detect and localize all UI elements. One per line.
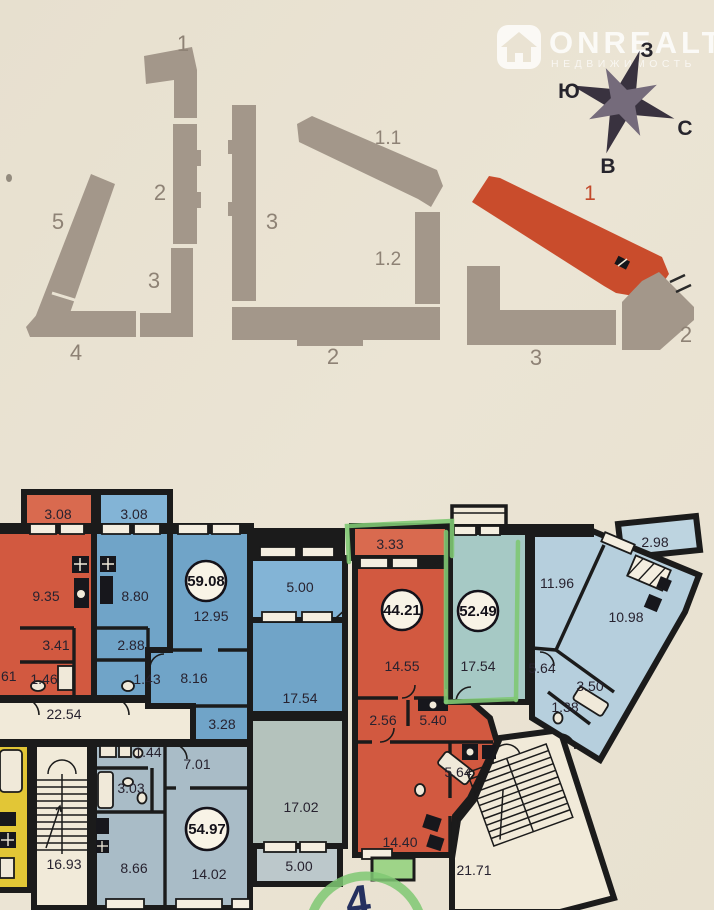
unit-total-44-21: 44.21 [383, 602, 421, 619]
bath-icon [100, 576, 113, 604]
compass-label-north: С [677, 117, 692, 140]
bath-icon [0, 750, 22, 792]
window [176, 899, 222, 909]
area-1-43: 1.43 [133, 671, 160, 687]
area-3-41: 3.41 [42, 637, 69, 653]
building-mid-3 [232, 105, 256, 301]
area-balcony-a: 3.08 [44, 506, 71, 522]
area-2-88: 2.88 [117, 637, 144, 653]
window [106, 899, 144, 909]
apartment-yellow-partial [0, 744, 30, 890]
area-14-02: 14.02 [191, 866, 226, 882]
area-14-40: 14.40 [382, 834, 417, 850]
window [300, 842, 326, 852]
window [232, 899, 250, 909]
building-left-2-bump2 [197, 192, 201, 208]
area-balcony-5-00-bottom: 5.00 [285, 858, 312, 874]
washer-icon [100, 746, 116, 757]
site-label-left-4: 4 [70, 340, 82, 365]
window [302, 547, 334, 557]
green-line-right-5249 [516, 542, 518, 700]
window [302, 612, 332, 622]
window [262, 612, 296, 622]
area-stairs-21-71: 21.71 [456, 862, 491, 878]
window [178, 524, 208, 534]
area-3-03: 3.03 [117, 780, 144, 796]
building-mid-1-2 [415, 212, 440, 304]
area-3-28: 3.28 [208, 716, 235, 732]
area-17-02: 17.02 [283, 799, 318, 815]
wall-17-54-17-02 [250, 712, 345, 719]
window [392, 558, 418, 568]
building-mid-3-bump2 [228, 202, 232, 216]
counter-icon [0, 812, 16, 826]
site-label-mid-3: 3 [266, 209, 278, 234]
area-8-16: 8.16 [180, 670, 207, 686]
site-label-right-1: 1 [584, 182, 596, 205]
window [212, 524, 240, 534]
site-label-right-3: 3 [530, 345, 542, 370]
area-17-54-teal: 17.54 [460, 658, 495, 674]
unit-total-52-49: 52.49 [459, 603, 497, 620]
area-14-55: 14.55 [384, 658, 419, 674]
area-stairs-16-93: 16.93 [46, 856, 81, 872]
watermark-subtitle: НЕДВИЖИМОСТЬ [551, 58, 696, 70]
bath-icon [98, 772, 113, 808]
area-1-46: 1.46 [30, 671, 57, 687]
area-2-56: 2.56 [369, 712, 396, 728]
shower-icon [58, 666, 73, 690]
building-left-2 [173, 124, 197, 244]
wall-band-f [528, 524, 594, 537]
unit-total-54-97: 54.97 [188, 821, 226, 838]
area-17-54-mid: 17.54 [282, 690, 317, 706]
area-5-40: 5.40 [419, 712, 446, 728]
site-label-mid-1-1: 1.1 [375, 128, 401, 149]
window [260, 547, 296, 557]
site-label-left-5: 5 [52, 209, 64, 234]
toilet-icon [415, 784, 425, 796]
toilet-icon [122, 681, 134, 691]
compass-label-north-west: З [640, 39, 653, 62]
site-label-left-1: 1 [177, 31, 189, 56]
window [134, 524, 160, 534]
site-label-mid-2: 2 [327, 344, 339, 369]
compass-label-south: Ю [558, 80, 580, 103]
washer-icon-2 [119, 746, 131, 757]
watermark-brand: ONREALT [549, 25, 714, 60]
floorplan-photo: ONREALT НЕДВИЖИМОСТЬ З Ю С В 1 2 3 4 5 [0, 0, 714, 910]
window [264, 842, 296, 852]
room-17-02 [250, 718, 345, 846]
area-11-96: 11.96 [540, 575, 574, 591]
window [30, 524, 56, 534]
area-7-01: 7.01 [183, 756, 210, 772]
site-label-right-2: 2 [680, 322, 692, 347]
area-12-95: 12.95 [193, 608, 228, 624]
area-balcony-5-00-top: 5.00 [286, 579, 313, 595]
area-1-44: 1.44 [134, 744, 161, 760]
window [60, 524, 84, 534]
area-3-50: 3.50 [576, 678, 603, 694]
building-left-2-bump [197, 150, 201, 166]
compass-label-east: В [600, 155, 615, 178]
window [480, 526, 500, 535]
area-5-64-red: 5.64 [444, 764, 471, 780]
area-corridor-22-54: 22.54 [46, 706, 81, 722]
area-edge-61: 61 [1, 668, 17, 684]
area-8-80: 8.80 [121, 588, 148, 604]
area-8-66: 8.66 [120, 860, 147, 876]
building-mid-3-bump [228, 140, 232, 154]
window [454, 526, 476, 535]
green-line-bottom-5249 [446, 699, 516, 702]
photo-speck [6, 174, 12, 182]
window [360, 558, 388, 568]
window [102, 524, 130, 534]
unit-total-59-08: 59.08 [187, 573, 225, 590]
fridge-icon [96, 818, 109, 834]
site-label-mid-1-2: 1.2 [375, 249, 401, 270]
area-2-98: 2.98 [641, 534, 668, 550]
site-label-left-2: 2 [154, 180, 166, 205]
area-balcony-b: 3.08 [120, 506, 147, 522]
area-9-35: 9.35 [32, 588, 59, 604]
area-3-33: 3.33 [376, 536, 403, 552]
site-label-left-3: 3 [148, 268, 160, 293]
onrealt-watermark: ONREALT НЕДВИЖИМОСТЬ [497, 25, 714, 70]
shower-icon [0, 858, 14, 878]
area-1-38: 1.38 [551, 699, 578, 715]
area-5-64-wing: 5.64 [528, 660, 555, 676]
area-10-98: 10.98 [608, 609, 643, 625]
